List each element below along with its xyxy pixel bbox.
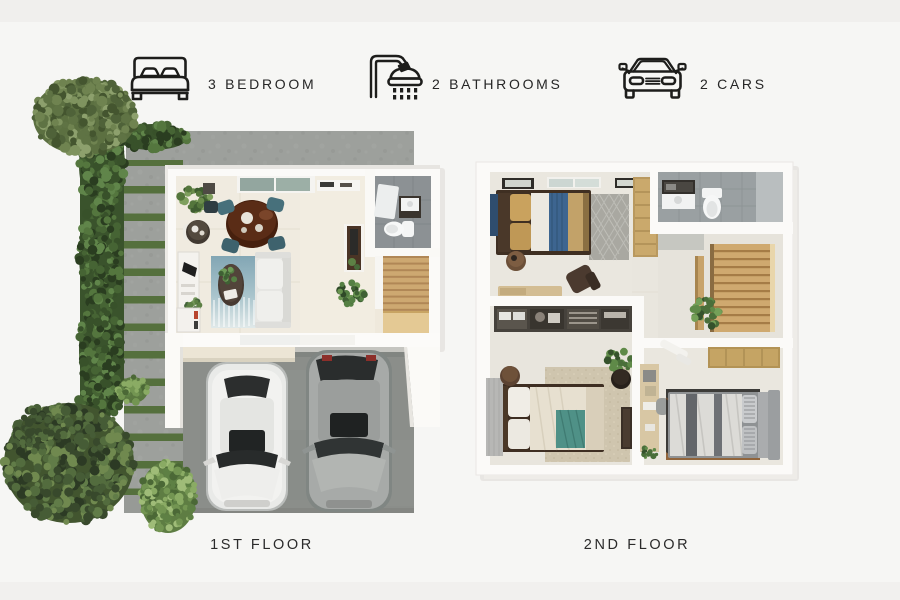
svg-text:2 CARS: 2 CARS xyxy=(700,76,767,92)
svg-text:2 BATHROOMS: 2 BATHROOMS xyxy=(432,76,563,92)
svg-text:2ND FLOOR: 2ND FLOOR xyxy=(584,537,690,553)
svg-text:3 BEDROOM: 3 BEDROOM xyxy=(208,76,316,92)
svg-text:1ST FLOOR: 1ST FLOOR xyxy=(210,537,314,553)
